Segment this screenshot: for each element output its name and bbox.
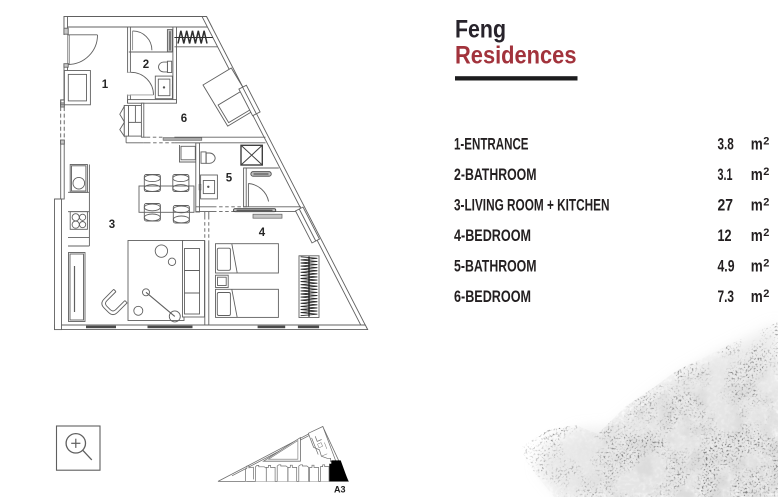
- svg-text:Feng: Feng: [455, 16, 506, 44]
- svg-text:m: m: [751, 288, 763, 306]
- svg-text:2: 2: [143, 59, 149, 71]
- svg-text:m: m: [751, 227, 763, 245]
- svg-text:2: 2: [763, 227, 769, 239]
- svg-text:6-BEDROOM: 6-BEDROOM: [454, 288, 531, 306]
- svg-text:Residences: Residences: [455, 41, 577, 69]
- svg-text:3: 3: [109, 219, 115, 231]
- svg-text:5: 5: [226, 173, 233, 185]
- svg-text:3.1: 3.1: [718, 166, 733, 184]
- svg-text:2: 2: [763, 258, 769, 270]
- svg-text:A3: A3: [334, 485, 346, 495]
- svg-text:2: 2: [763, 288, 769, 300]
- svg-text:3.8: 3.8: [718, 136, 734, 154]
- svg-text:m: m: [751, 166, 763, 184]
- svg-text:3-LIVING ROOM + KITCHEN: 3-LIVING ROOM + KITCHEN: [454, 197, 610, 215]
- svg-text:12: 12: [718, 227, 732, 245]
- svg-text:4-BEDROOM: 4-BEDROOM: [454, 227, 531, 245]
- svg-text:4: 4: [259, 227, 266, 239]
- svg-text:m: m: [751, 136, 763, 154]
- svg-text:2: 2: [763, 197, 769, 209]
- svg-text:6: 6: [181, 113, 187, 125]
- svg-text:4.9: 4.9: [718, 258, 735, 276]
- svg-text:2-BATHROOM: 2-BATHROOM: [454, 166, 537, 184]
- svg-text:m: m: [751, 197, 763, 215]
- svg-text:1: 1: [102, 79, 109, 91]
- svg-text:1-ENTRANCE: 1-ENTRANCE: [454, 136, 529, 154]
- svg-text:5-BATHROOM: 5-BATHROOM: [454, 258, 537, 276]
- svg-text:m: m: [751, 258, 763, 276]
- svg-text:2: 2: [763, 166, 769, 178]
- svg-text:7.3: 7.3: [718, 288, 735, 306]
- svg-text:27: 27: [718, 197, 734, 215]
- svg-text:2: 2: [763, 136, 769, 148]
